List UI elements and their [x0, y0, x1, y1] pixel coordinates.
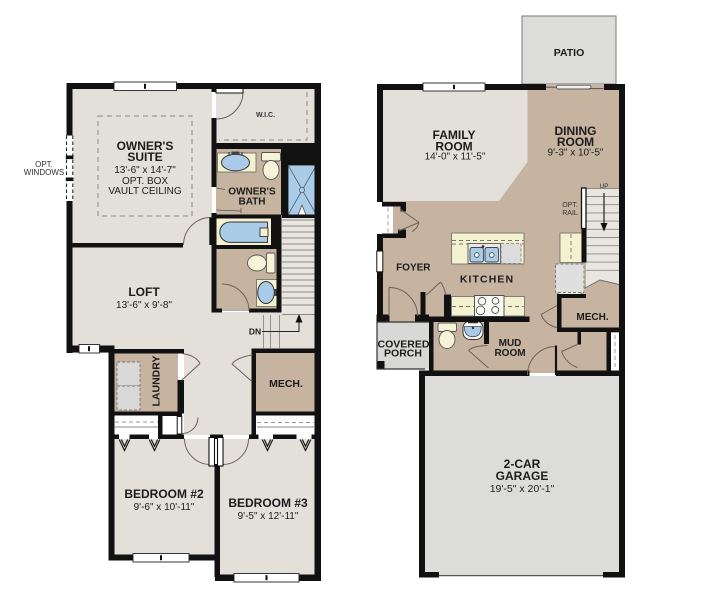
svg-text:VAULT CEILING: VAULT CEILING — [108, 186, 182, 197]
svg-text:PORCH: PORCH — [384, 348, 422, 360]
svg-text:FOYER: FOYER — [396, 262, 431, 273]
svg-text:ROOM: ROOM — [494, 348, 525, 359]
svg-text:UP: UP — [599, 183, 608, 190]
svg-text:LAUNDRY: LAUNDRY — [151, 356, 163, 407]
svg-text:SUITE: SUITE — [127, 150, 162, 164]
svg-text:WINDOWS: WINDOWS — [24, 168, 64, 177]
svg-text:RAIL: RAIL — [562, 210, 578, 217]
svg-text:PATIO: PATIO — [554, 47, 585, 59]
svg-text:13'-6" x 14'-7": 13'-6" x 14'-7" — [114, 165, 176, 176]
svg-text:14'-0" x 11'-5": 14'-0" x 11'-5" — [425, 152, 486, 163]
svg-text:BEDROOM #3: BEDROOM #3 — [228, 496, 308, 510]
svg-text:MECH.: MECH. — [269, 378, 303, 390]
svg-text:13'-6" x 9'-8": 13'-6" x 9'-8" — [116, 300, 172, 311]
svg-text:9'-6" x 10'-11": 9'-6" x 10'-11" — [134, 502, 195, 513]
svg-text:MECH.: MECH. — [576, 312, 608, 323]
svg-text:9'-3" x 10'-5": 9'-3" x 10'-5" — [548, 148, 604, 159]
svg-text:9'-5" x 12'-11": 9'-5" x 12'-11" — [238, 511, 299, 522]
svg-text:GARAGE: GARAGE — [496, 469, 549, 483]
svg-text:BEDROOM #2: BEDROOM #2 — [124, 487, 204, 501]
svg-text:LOFT: LOFT — [128, 285, 160, 299]
svg-text:BATH: BATH — [238, 197, 265, 208]
svg-text:DN: DN — [249, 326, 261, 336]
svg-text:W.I.C.: W.I.C. — [256, 112, 275, 119]
svg-text:OPT.: OPT. — [562, 202, 578, 209]
svg-text:KITCHEN: KITCHEN — [460, 273, 514, 285]
svg-text:19'-5" x 20'-1": 19'-5" x 20'-1" — [490, 483, 555, 495]
